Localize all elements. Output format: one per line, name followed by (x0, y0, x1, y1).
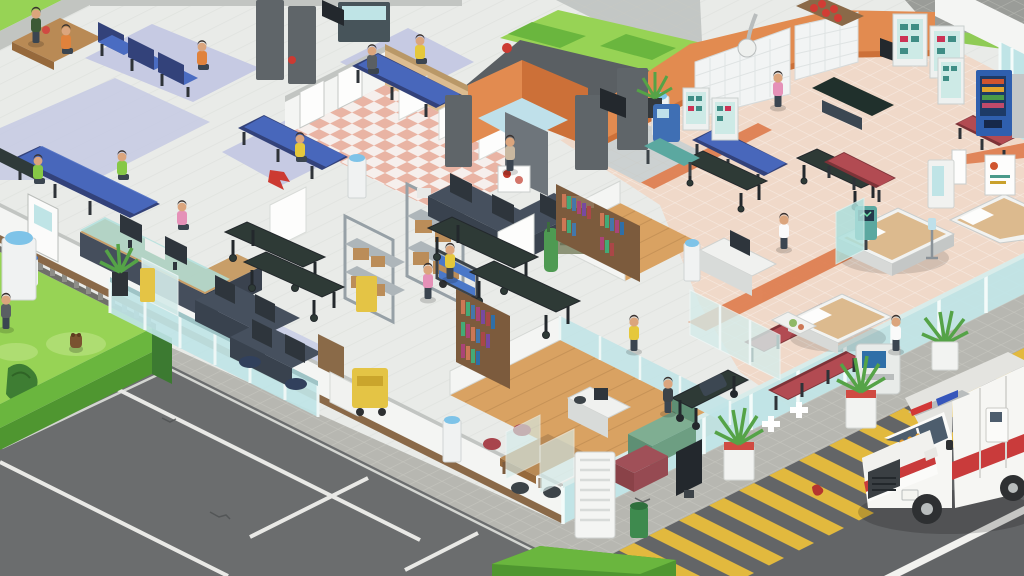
biohazard-bin (140, 268, 155, 302)
aquarium-cabinet (338, 2, 390, 42)
fire-extinguisher (288, 56, 296, 64)
anesthesia-machine[interactable] (653, 104, 680, 142)
fire-extinguisher (502, 43, 512, 53)
vending-machine[interactable] (976, 70, 1024, 138)
biohazard-bin (356, 276, 377, 312)
coat-rack (544, 222, 558, 272)
water-cooler-large (2, 231, 36, 300)
green-trash-can[interactable] (630, 502, 648, 538)
game-viewport[interactable] (0, 0, 1024, 576)
groundhog[interactable] (69, 333, 83, 353)
hospital-scene (0, 0, 1024, 576)
ac-unit (575, 452, 615, 538)
supply-fridge (928, 160, 954, 208)
